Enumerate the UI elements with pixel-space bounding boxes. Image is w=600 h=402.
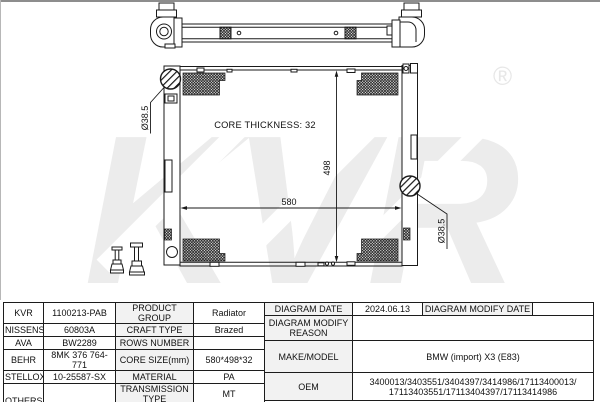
inlet-port [161, 69, 181, 89]
property-cell: CORE SIZE(mm) [116, 350, 194, 371]
left-tank-bracket-inner [168, 96, 174, 101]
table-row: DIAGRAM MODIFY REASON [265, 316, 594, 341]
diagram-date-label: DIAGRAM DATE [265, 303, 353, 316]
table-row: OTHERS TRANSMISSION TYPE MT [4, 384, 265, 402]
diagram-modify-date-value [533, 303, 594, 316]
table-row: BEHR 8MK 376 764-771 CORE SIZE(mm) 580*4… [4, 350, 265, 371]
oem-label: OEM [265, 373, 353, 401]
window-left-edge [0, 0, 1, 300]
mount-tab [347, 69, 355, 73]
property-cell: ROWS NUMBER [116, 337, 194, 350]
brand-cell: BEHR [4, 350, 44, 371]
table-row: MAKE/MODEL BMW (import) X3 (E83) [265, 341, 594, 373]
property-cell: PRODUCT GROUP [116, 303, 194, 324]
mount-tab [210, 262, 219, 266]
brand-cell: OTHERS [4, 384, 44, 402]
mount-tab [318, 263, 324, 266]
core-thickness-note: CORE THICKNESS: 32 [214, 120, 316, 130]
width-dimension-label: 580 [281, 197, 296, 207]
window-top-edge [0, 0, 600, 2]
cross-reference-table: KVR 1100213-PAB PRODUCT GROUP Radiator N… [3, 302, 265, 402]
part-number-cell: 10-25587-SX [44, 371, 116, 384]
mount-tab [197, 68, 204, 72]
fin-band-top-left [183, 73, 225, 95]
mount-tab [296, 262, 305, 266]
oem-value-line1: 3400013/3403551/3404397/3414986/17113400… [354, 377, 592, 387]
property-cell: MATERIAL [116, 371, 194, 384]
height-dimension-label: 498 [322, 160, 332, 175]
top-view-mount-pad [220, 27, 231, 39]
table-row: DIAGRAM DATE 2024.06.13 DIAGRAM MODIFY D… [265, 303, 594, 316]
part-data-tables: KVR 1100213-PAB PRODUCT GROUP Radiator N… [3, 302, 594, 402]
registered-trademark-icon: ® [493, 61, 512, 91]
value-cell: 580*498*32 [194, 350, 265, 371]
fin-band-bottom-left [183, 239, 225, 261]
right-port-diameter-label: Ø38.5 [437, 219, 447, 244]
oem-value: 3400013/3403551/3404397/3414986/17113400… [353, 373, 594, 401]
right-tank-pad [404, 228, 411, 240]
mount-tab [227, 69, 232, 72]
right-tank-rib [411, 135, 417, 159]
property-cell: CRAFT TYPE [116, 324, 194, 337]
right-tank-cap-hole [404, 67, 408, 71]
diagram-info-table: DIAGRAM DATE 2024.06.13 DIAGRAM MODIFY D… [264, 302, 594, 401]
part-number-cell: BW2289 [44, 337, 116, 350]
brand-cell: KVR [4, 303, 44, 324]
brand-cell: STELLOX [4, 371, 44, 384]
top-view-right-fitting [387, 3, 425, 47]
part-number-cell: 1100213-PAB [44, 303, 116, 324]
diagram-date-value: 2024.06.13 [353, 303, 423, 316]
part-number-cell: 60803A [44, 324, 116, 337]
screw-hole [331, 262, 334, 265]
table-row: KVR 1100213-PAB PRODUCT GROUP Radiator [4, 303, 265, 324]
fin-band-bottom-right [357, 239, 398, 261]
left-port-diameter-label: Ø38.5 [140, 106, 150, 131]
left-tank-rib [165, 160, 172, 192]
fin-band-top-right [357, 73, 398, 95]
screw-hole [325, 262, 328, 265]
diagram-modify-date-label: DIAGRAM MODIFY DATE [423, 303, 533, 316]
value-cell: Radiator [194, 303, 265, 324]
drain-port [167, 247, 178, 258]
mount-tab [347, 262, 355, 266]
mount-tab [291, 69, 297, 72]
value-cell: Brazed [194, 324, 265, 337]
top-view-left-fitting [151, 3, 183, 48]
left-tank-pad [165, 229, 172, 240]
property-cell: TRANSMISSION TYPE [116, 384, 194, 402]
table-row: AVA BW2289 ROWS NUMBER [4, 337, 265, 350]
arrowhead-up [335, 71, 339, 77]
part-number-cell [44, 384, 116, 402]
outlet-port [400, 176, 420, 196]
value-cell: MT [194, 384, 265, 402]
radiator-diagram-page: KVR ® [0, 0, 600, 402]
value-cell [194, 337, 265, 350]
part-number-cell: 8MK 376 764-771 [44, 350, 116, 371]
make-model-label: MAKE/MODEL [265, 341, 353, 373]
radiator-top-view [151, 3, 425, 48]
top-view-mount-pad [345, 27, 356, 39]
table-row: STELLOX 10-25587-SX MATERIAL PA [4, 371, 265, 384]
diagram-modify-reason-label: DIAGRAM MODIFY REASON [265, 316, 353, 341]
brand-cell: AVA [4, 337, 44, 350]
table-row: NISSENS 60803A CRAFT TYPE Brazed [4, 324, 265, 337]
value-cell: PA [194, 371, 265, 384]
table-row: OEM 3400013/3403551/3404397/3414986/1711… [265, 373, 594, 401]
oem-value-line2: 17113403551/17113404397/17113414986 [354, 387, 592, 397]
right-tank-hook [411, 64, 418, 74]
diagram-modify-reason-value [353, 316, 594, 341]
radiator-technical-drawing: KVR ® [0, 0, 600, 302]
brand-cell: NISSENS [4, 324, 44, 337]
make-model-value: BMW (import) X3 (E83) [353, 341, 594, 373]
